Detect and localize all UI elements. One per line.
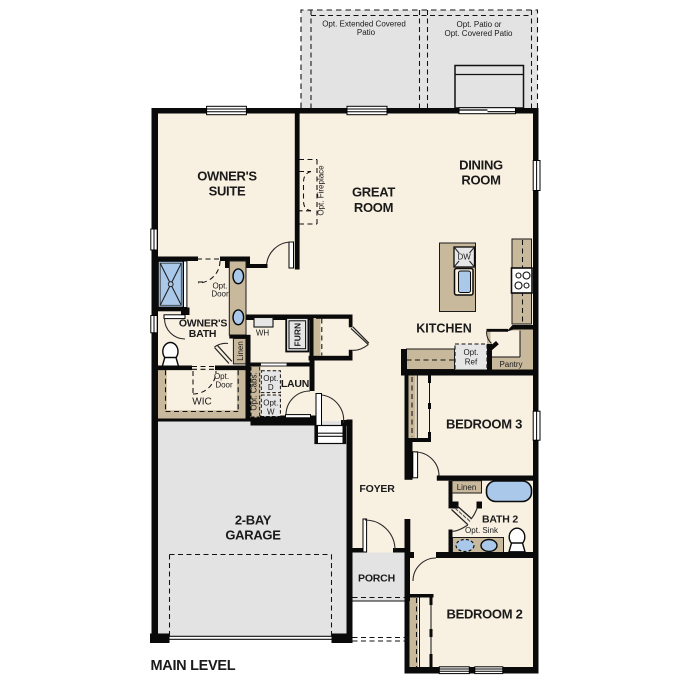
svg-text:LAUN: LAUN bbox=[281, 378, 309, 390]
svg-text:BATH 2: BATH 2 bbox=[482, 514, 518, 526]
svg-text:W: W bbox=[267, 408, 275, 417]
svg-text:PORCH: PORCH bbox=[358, 573, 395, 585]
svg-text:GARAGE: GARAGE bbox=[225, 528, 281, 543]
svg-text:KITCHEN: KITCHEN bbox=[416, 322, 472, 336]
svg-text:Opt. Fireplace: Opt. Fireplace bbox=[317, 165, 326, 216]
svg-text:Patio: Patio bbox=[357, 28, 376, 37]
svg-text:DW: DW bbox=[458, 253, 472, 262]
svg-text:DINING: DINING bbox=[459, 158, 503, 173]
svg-text:BEDROOM 3: BEDROOM 3 bbox=[446, 417, 522, 432]
svg-text:WIC: WIC bbox=[192, 397, 211, 408]
svg-text:2-BAY: 2-BAY bbox=[235, 513, 272, 528]
svg-text:Opt.: Opt. bbox=[263, 399, 278, 408]
svg-text:MAIN LEVEL: MAIN LEVEL bbox=[151, 658, 236, 674]
svg-text:ROOM: ROOM bbox=[354, 200, 393, 215]
svg-text:Opt.: Opt. bbox=[463, 348, 478, 357]
svg-text:Opt. Patio or: Opt. Patio or bbox=[457, 20, 502, 29]
svg-text:Pantry: Pantry bbox=[499, 360, 522, 369]
svg-text:GREAT: GREAT bbox=[352, 185, 395, 200]
svg-text:SUITE: SUITE bbox=[209, 184, 246, 199]
svg-text:BEDROOM 2: BEDROOM 2 bbox=[446, 607, 522, 622]
svg-text:Door: Door bbox=[211, 290, 229, 299]
svg-text:Linen: Linen bbox=[236, 341, 245, 361]
svg-text:OWNER'S: OWNER'S bbox=[197, 169, 257, 184]
svg-text:Door: Door bbox=[215, 381, 233, 390]
svg-text:WH: WH bbox=[256, 329, 270, 338]
svg-text:Ref: Ref bbox=[465, 358, 478, 367]
svg-text:Linen: Linen bbox=[457, 483, 477, 492]
svg-text:D: D bbox=[268, 383, 274, 392]
svg-text:Opt.: Opt. bbox=[263, 374, 278, 383]
svg-text:ROOM: ROOM bbox=[461, 173, 500, 188]
svg-text:FURN: FURN bbox=[293, 323, 303, 347]
svg-text:Opt. Covered Patio: Opt. Covered Patio bbox=[444, 29, 513, 38]
svg-text:BATH: BATH bbox=[189, 328, 217, 340]
svg-text:Opt. Sink: Opt. Sink bbox=[465, 526, 499, 535]
svg-text:Opt. Cabs.: Opt. Cabs. bbox=[250, 372, 259, 410]
svg-text:FOYER: FOYER bbox=[359, 483, 395, 495]
